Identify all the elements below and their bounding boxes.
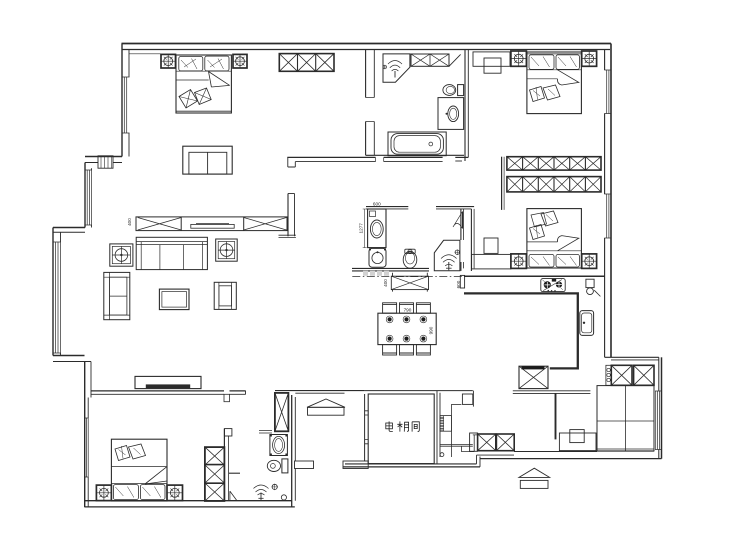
- svg-text:400: 400: [127, 218, 132, 226]
- svg-text:990: 990: [429, 326, 434, 334]
- svg-text:790: 790: [404, 307, 412, 312]
- svg-text:1277: 1277: [359, 223, 364, 234]
- svg-text:600: 600: [373, 201, 381, 206]
- svg-text:600: 600: [456, 280, 461, 288]
- svg-text:400: 400: [383, 279, 388, 287]
